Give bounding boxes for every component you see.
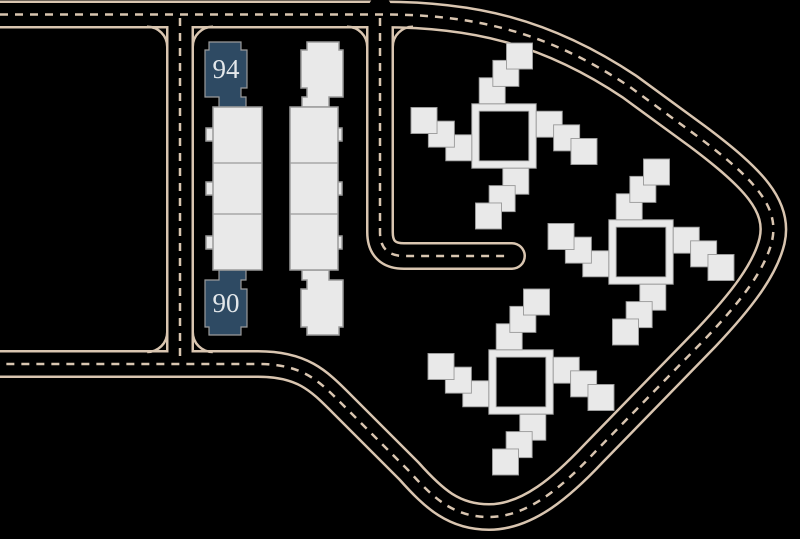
junction-fillet: [347, 27, 367, 47]
site-plan-canvas: 94 90: [0, 0, 800, 539]
junction-fillet: [147, 27, 167, 47]
building-90-label: 90: [213, 288, 240, 318]
slab-b-south-tower[interactable]: [301, 270, 343, 335]
junction-fillet: [393, 27, 413, 47]
slab-b-body[interactable]: [290, 107, 338, 270]
building-slab-a[interactable]: 94 90: [205, 42, 262, 335]
slab-b-north-tower[interactable]: [301, 42, 343, 107]
courtyard-building-north[interactable]: [411, 43, 597, 229]
road-network: [0, 8, 773, 517]
courtyard-building-east[interactable]: [548, 159, 734, 345]
building-94-label: 94: [213, 54, 241, 84]
slab-a-body[interactable]: [213, 107, 262, 270]
junction-fillet: [147, 332, 167, 352]
building-slab-b[interactable]: [290, 42, 343, 335]
site-plan-map: 94 90: [0, 0, 800, 539]
